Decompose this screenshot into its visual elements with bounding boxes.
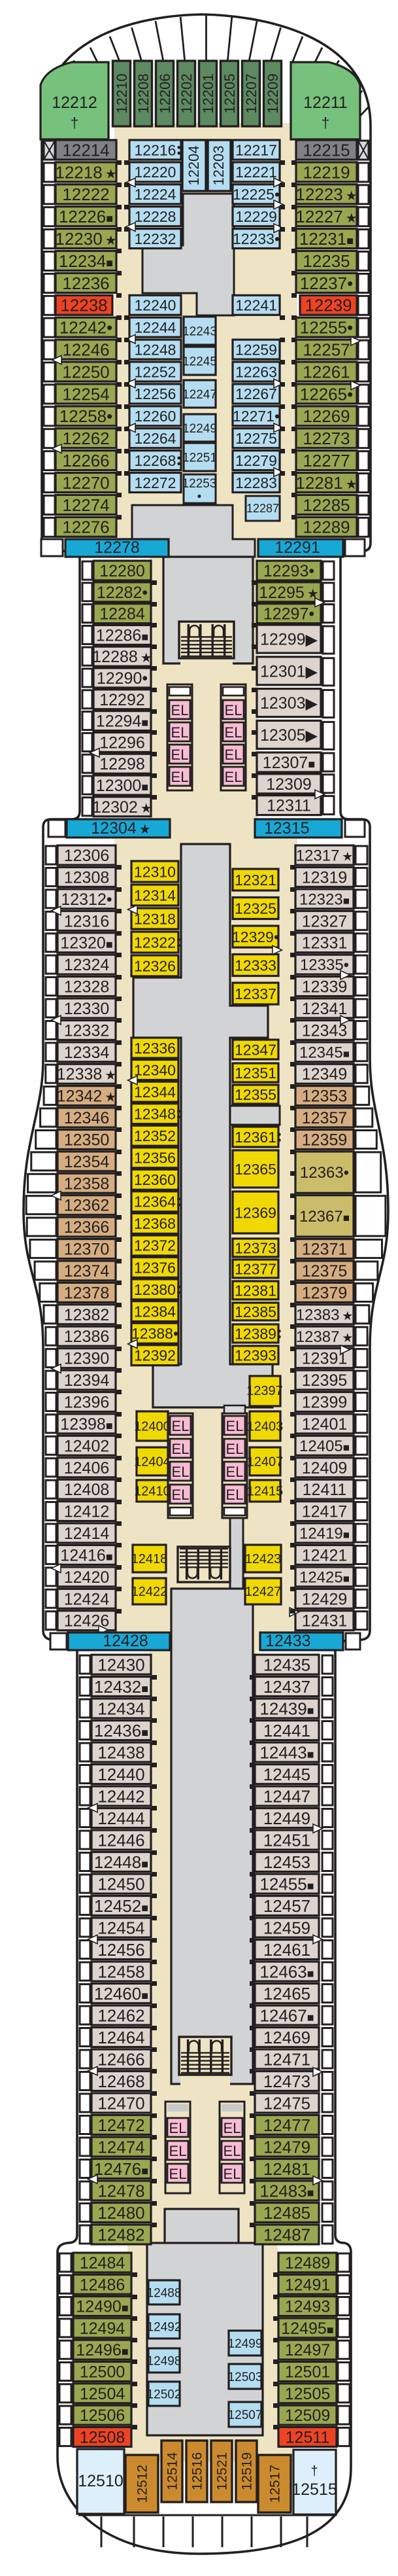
- svg-text:12301▶: 12301▶: [260, 662, 318, 680]
- svg-text:12225•: 12225•: [233, 186, 280, 203]
- svg-text:12219: 12219: [303, 162, 350, 182]
- svg-text:12275: 12275: [235, 430, 277, 447]
- svg-text:12221: 12221: [235, 164, 277, 181]
- svg-text:12390: 12390: [64, 1350, 110, 1368]
- svg-text:12268: 12268: [135, 452, 176, 469]
- svg-text:12344: 12344: [134, 1084, 176, 1101]
- svg-text:12367■: 12367■: [299, 1208, 350, 1226]
- svg-text:12269: 12269: [303, 406, 350, 426]
- svg-text:12291: 12291: [274, 538, 320, 557]
- svg-text:12482: 12482: [97, 2225, 144, 2244]
- svg-text:12500: 12500: [80, 2363, 125, 2382]
- svg-text:12351: 12351: [235, 1065, 276, 1082]
- svg-text:12266: 12266: [62, 451, 109, 470]
- svg-text:12208: 12208: [135, 73, 152, 113]
- svg-text:EL: EL: [172, 1487, 190, 1503]
- svg-text:12231■: 12231■: [299, 229, 354, 249]
- svg-text:12428: 12428: [103, 1632, 148, 1650]
- svg-text:12353: 12353: [302, 1087, 348, 1106]
- svg-text:12515: 12515: [291, 2480, 337, 2499]
- svg-text:EL: EL: [226, 1487, 244, 1503]
- svg-text:12446: 12446: [97, 1830, 144, 1850]
- svg-text:12206: 12206: [157, 73, 173, 113]
- svg-text:12264: 12264: [135, 430, 176, 447]
- svg-text:12359: 12359: [302, 1131, 348, 1150]
- svg-text:12350: 12350: [64, 1131, 110, 1150]
- svg-text:12499: 12499: [228, 2337, 263, 2351]
- svg-text:EL: EL: [226, 1464, 244, 1480]
- svg-text:12469: 12469: [263, 2028, 310, 2047]
- svg-text:EL: EL: [169, 2166, 187, 2182]
- svg-text:EL: EL: [225, 702, 242, 718]
- svg-text:12490■: 12490■: [76, 2298, 128, 2316]
- svg-text:12322: 12322: [134, 934, 176, 951]
- svg-text:EL: EL: [169, 2120, 187, 2136]
- svg-text:12464: 12464: [97, 2028, 144, 2047]
- svg-text:12493: 12493: [285, 2298, 331, 2316]
- svg-text:12325: 12325: [235, 900, 276, 917]
- svg-text:12485: 12485: [263, 2203, 310, 2223]
- svg-text:12505: 12505: [285, 2385, 331, 2403]
- svg-text:12363•: 12363•: [300, 1164, 349, 1182]
- svg-text:12365: 12365: [235, 1161, 276, 1178]
- svg-text:12434: 12434: [97, 1699, 144, 1718]
- svg-text:12484: 12484: [80, 2254, 125, 2272]
- svg-text:12462: 12462: [97, 2005, 144, 2025]
- svg-text:12463■: 12463■: [259, 1962, 314, 1981]
- svg-text:12486: 12486: [80, 2276, 125, 2294]
- svg-text:12314: 12314: [134, 887, 176, 904]
- svg-text:12467■: 12467■: [259, 2005, 314, 2025]
- svg-text:12309: 12309: [266, 775, 312, 794]
- svg-text:12293•: 12293•: [263, 562, 314, 580]
- svg-text:12203: 12203: [210, 145, 227, 185]
- svg-text:12477: 12477: [263, 2115, 310, 2135]
- svg-text:12331: 12331: [302, 934, 348, 953]
- svg-text:12234■: 12234■: [59, 251, 113, 271]
- svg-text:12438: 12438: [97, 1742, 144, 1762]
- svg-text:12417: 12417: [302, 1503, 348, 1521]
- svg-text:12297•: 12297•: [263, 605, 314, 624]
- svg-text:12274: 12274: [62, 495, 109, 515]
- svg-text:12448■: 12448■: [94, 1852, 148, 1872]
- svg-text:12502: 12502: [147, 2388, 182, 2401]
- svg-text:12259: 12259: [235, 341, 277, 358]
- svg-text:†: †: [71, 115, 78, 131]
- svg-text:12358: 12358: [64, 1174, 110, 1193]
- svg-text:12385: 12385: [235, 1303, 276, 1320]
- svg-text:12330: 12330: [64, 1000, 110, 1018]
- svg-text:EL: EL: [226, 1441, 244, 1457]
- svg-text:12481: 12481: [263, 2159, 310, 2179]
- svg-text:12508: 12508: [80, 2428, 125, 2446]
- svg-text:EL: EL: [224, 2143, 241, 2159]
- svg-text:EL: EL: [172, 1464, 190, 1480]
- svg-text:12265•: 12265•: [300, 384, 353, 404]
- svg-text:12501: 12501: [285, 2363, 331, 2382]
- svg-text:12205: 12205: [222, 73, 238, 113]
- svg-text:12474: 12474: [97, 2137, 144, 2157]
- svg-text:12361: 12361: [235, 1129, 276, 1146]
- svg-text:12447: 12447: [263, 1786, 310, 1806]
- svg-text:12468: 12468: [97, 2072, 144, 2091]
- svg-text:12398■: 12398■: [60, 1415, 112, 1434]
- svg-text:12373: 12373: [235, 1239, 276, 1256]
- svg-text:12478: 12478: [97, 2181, 144, 2200]
- svg-text:12286■: 12286■: [96, 626, 148, 644]
- svg-text:12429: 12429: [302, 1590, 348, 1608]
- svg-text:12294■: 12294■: [96, 713, 148, 731]
- svg-text:12342 ★: 12342 ★: [57, 1087, 116, 1106]
- svg-text:12514: 12514: [165, 2452, 180, 2490]
- svg-text:12352: 12352: [134, 1127, 176, 1144]
- svg-text:12418: 12418: [131, 1552, 168, 1566]
- svg-text:EL: EL: [172, 1441, 190, 1457]
- svg-text:12202: 12202: [178, 73, 195, 113]
- svg-text:12487: 12487: [263, 2225, 310, 2244]
- svg-text:12384: 12384: [134, 1303, 176, 1320]
- svg-text:12243: 12243: [182, 325, 217, 338]
- svg-text:12516: 12516: [190, 2452, 205, 2490]
- svg-text:12355: 12355: [235, 1086, 276, 1103]
- svg-text:12348: 12348: [134, 1105, 176, 1122]
- svg-text:12437: 12437: [263, 1677, 310, 1697]
- svg-text:12320■: 12320■: [60, 934, 112, 953]
- svg-text:12241: 12241: [235, 297, 277, 314]
- svg-text:12407: 12407: [247, 1455, 284, 1470]
- svg-text:EL: EL: [171, 702, 189, 718]
- svg-text:12476■: 12476■: [94, 2159, 148, 2179]
- svg-text:12272: 12272: [135, 474, 176, 491]
- svg-text:12439■: 12439■: [259, 1699, 314, 1718]
- svg-text:12278: 12278: [94, 538, 140, 557]
- svg-text:12422: 12422: [131, 1585, 168, 1599]
- svg-text:12444: 12444: [97, 1808, 144, 1828]
- svg-text:12466: 12466: [97, 2049, 144, 2069]
- svg-text:12279: 12279: [235, 452, 277, 469]
- svg-text:12319: 12319: [302, 868, 348, 887]
- svg-text:12232: 12232: [135, 230, 176, 247]
- svg-text:12357: 12357: [302, 1109, 348, 1127]
- svg-text:12337: 12337: [235, 985, 276, 1002]
- svg-text:12388•: 12388•: [131, 1325, 178, 1342]
- svg-text:12475: 12475: [263, 2093, 310, 2113]
- svg-text:12368: 12368: [134, 1215, 176, 1232]
- svg-text:EL: EL: [224, 2120, 241, 2136]
- svg-text:12381: 12381: [235, 1282, 276, 1299]
- svg-text:12449: 12449: [263, 1808, 310, 1828]
- svg-text:12494: 12494: [80, 2320, 125, 2338]
- svg-text:12251: 12251: [182, 451, 217, 465]
- svg-text:12411: 12411: [303, 1481, 347, 1499]
- svg-text:12401: 12401: [302, 1415, 348, 1434]
- svg-text:EL: EL: [225, 747, 242, 763]
- svg-text:12509: 12509: [285, 2407, 331, 2425]
- svg-text:12406: 12406: [64, 1459, 110, 1477]
- svg-text:12424: 12424: [64, 1590, 110, 1608]
- svg-text:12377: 12377: [235, 1260, 276, 1277]
- svg-text:12340: 12340: [134, 1061, 176, 1078]
- svg-text:12228: 12228: [135, 208, 176, 225]
- svg-text:12415: 12415: [247, 1485, 284, 1499]
- svg-text:12480: 12480: [97, 2203, 144, 2223]
- svg-text:12250: 12250: [62, 362, 109, 381]
- svg-text:12315: 12315: [264, 819, 310, 838]
- svg-text:12521: 12521: [215, 2452, 230, 2490]
- svg-text:12379: 12379: [302, 1284, 348, 1302]
- svg-text:12215: 12215: [303, 140, 350, 160]
- svg-text:12212: 12212: [52, 94, 97, 112]
- svg-text:12389: 12389: [235, 1325, 276, 1342]
- svg-text:12504: 12504: [80, 2385, 125, 2403]
- svg-text:12427: 12427: [245, 1585, 282, 1599]
- svg-text:12260: 12260: [135, 408, 176, 425]
- svg-text:12209: 12209: [265, 73, 281, 113]
- svg-text:12392: 12392: [134, 1347, 176, 1364]
- svg-text:12410: 12410: [134, 1485, 171, 1499]
- svg-text:12370: 12370: [64, 1241, 110, 1259]
- svg-text:12431: 12431: [302, 1612, 348, 1631]
- svg-text:12497: 12497: [285, 2341, 331, 2359]
- svg-text:12280: 12280: [99, 562, 145, 580]
- svg-text:12327: 12327: [302, 912, 348, 930]
- svg-text:12287: 12287: [246, 502, 279, 515]
- svg-text:12298: 12298: [99, 755, 145, 773]
- svg-text:12460■: 12460■: [94, 1984, 148, 2003]
- svg-text:12282•: 12282•: [97, 584, 148, 602]
- svg-text:12409: 12409: [302, 1459, 348, 1477]
- svg-text:12329•: 12329•: [232, 928, 279, 945]
- svg-text:12336: 12336: [134, 1040, 176, 1057]
- svg-text:12349: 12349: [302, 1065, 348, 1084]
- svg-text:12453: 12453: [263, 1852, 310, 1872]
- svg-text:12210: 12210: [114, 73, 130, 113]
- svg-text:12326: 12326: [134, 957, 176, 974]
- svg-text:12492: 12492: [147, 2320, 182, 2334]
- svg-text:12511: 12511: [286, 2428, 330, 2446]
- svg-text:12376: 12376: [134, 1259, 176, 1276]
- svg-text:12479: 12479: [263, 2137, 310, 2157]
- svg-text:12414: 12414: [64, 1525, 110, 1543]
- svg-text:12328: 12328: [64, 978, 110, 997]
- svg-text:12244: 12244: [135, 319, 176, 336]
- svg-text:12245: 12245: [182, 355, 217, 368]
- svg-text:12441: 12441: [263, 1721, 310, 1740]
- svg-text:12450: 12450: [97, 1874, 144, 1894]
- svg-text:12226■: 12226■: [59, 207, 113, 226]
- svg-text:12372: 12372: [134, 1237, 176, 1254]
- svg-text:12240: 12240: [135, 297, 176, 314]
- svg-text:12354: 12354: [64, 1153, 110, 1171]
- svg-text:12295 ★: 12295 ★: [259, 584, 318, 602]
- svg-text:12324: 12324: [64, 956, 110, 974]
- svg-text:12254: 12254: [62, 384, 109, 404]
- svg-text:12204: 12204: [186, 145, 202, 185]
- svg-text:12495■: 12495■: [281, 2320, 333, 2338]
- svg-text:12386: 12386: [64, 1328, 110, 1346]
- svg-text:12246: 12246: [62, 340, 109, 360]
- svg-text:12339: 12339: [302, 978, 348, 997]
- svg-text:12483■: 12483■: [259, 2181, 314, 2200]
- svg-text:12304 ★: 12304 ★: [91, 819, 150, 838]
- svg-text:12399: 12399: [302, 1394, 348, 1412]
- svg-text:12435: 12435: [263, 1655, 310, 1674]
- svg-text:12405■: 12405■: [299, 1438, 350, 1455]
- svg-text:12270: 12270: [62, 473, 109, 493]
- svg-text:12311: 12311: [267, 797, 311, 815]
- svg-text:12303▶: 12303▶: [260, 694, 318, 713]
- svg-text:12308: 12308: [64, 868, 110, 887]
- svg-text:12400: 12400: [134, 1420, 171, 1434]
- svg-text:12419■: 12419■: [299, 1525, 350, 1543]
- svg-text:12276: 12276: [62, 518, 109, 537]
- svg-text:†: †: [310, 2464, 318, 2479]
- svg-text:12496■: 12496■: [76, 2341, 128, 2359]
- svg-text:12252: 12252: [135, 363, 176, 380]
- svg-text:12472: 12472: [97, 2115, 144, 2135]
- svg-text:12459: 12459: [263, 1918, 310, 1937]
- svg-text:12235: 12235: [303, 251, 350, 271]
- svg-text:12338 ★: 12338 ★: [57, 1065, 116, 1084]
- svg-text:12356: 12356: [134, 1150, 176, 1167]
- svg-text:12430: 12430: [97, 1655, 144, 1674]
- svg-text:12284: 12284: [99, 605, 145, 624]
- svg-text:EL: EL: [225, 769, 242, 785]
- svg-text:12249: 12249: [182, 422, 217, 436]
- svg-text:12305▶: 12305▶: [260, 726, 318, 745]
- svg-text:•: •: [197, 490, 202, 504]
- svg-text:12403: 12403: [247, 1420, 284, 1434]
- svg-text:12436■: 12436■: [94, 1721, 148, 1740]
- svg-text:12242•: 12242•: [59, 318, 112, 338]
- svg-text:12292: 12292: [99, 691, 145, 709]
- svg-text:12425■: 12425■: [299, 1569, 350, 1587]
- svg-text:12310: 12310: [134, 863, 176, 880]
- svg-text:12263: 12263: [235, 363, 277, 380]
- svg-text:12452■: 12452■: [94, 1896, 148, 1916]
- svg-text:12510: 12510: [78, 2472, 124, 2490]
- svg-text:12423: 12423: [245, 1552, 282, 1566]
- svg-text:12224: 12224: [135, 186, 176, 203]
- svg-text:12261: 12261: [303, 362, 350, 381]
- svg-text:12233•: 12233•: [233, 230, 280, 247]
- svg-text:12296: 12296: [99, 733, 145, 752]
- svg-text:12273: 12273: [303, 429, 350, 448]
- svg-text:12237•: 12237•: [300, 273, 353, 293]
- svg-text:12332: 12332: [64, 1021, 110, 1040]
- svg-text:12442: 12442: [97, 1786, 144, 1806]
- svg-text:12214: 12214: [62, 140, 109, 160]
- svg-text:EL: EL: [224, 2166, 241, 2182]
- svg-text:12456: 12456: [97, 1940, 144, 1960]
- svg-text:12408: 12408: [64, 1481, 110, 1499]
- svg-text:12300■: 12300■: [96, 777, 148, 795]
- svg-text:12346: 12346: [64, 1109, 110, 1127]
- svg-text:12503: 12503: [228, 2371, 263, 2384]
- svg-text:12440: 12440: [97, 1765, 144, 1784]
- svg-text:12433: 12433: [265, 1632, 311, 1650]
- svg-text:12491: 12491: [285, 2276, 331, 2294]
- svg-text:12397: 12397: [246, 1384, 283, 1398]
- svg-text:12288 ★: 12288 ★: [92, 648, 152, 666]
- svg-text:12220: 12220: [135, 164, 176, 181]
- svg-text:12236: 12236: [62, 273, 109, 293]
- svg-text:12257: 12257: [303, 340, 350, 360]
- svg-text:12253: 12253: [182, 477, 217, 491]
- svg-text:12258•: 12258•: [59, 406, 112, 426]
- svg-text:12393: 12393: [235, 1347, 276, 1364]
- svg-text:12323■: 12323■: [299, 891, 350, 909]
- svg-text:12290•: 12290•: [97, 669, 148, 688]
- svg-text:12216: 12216: [135, 141, 176, 158]
- svg-text:12375: 12375: [302, 1262, 348, 1280]
- svg-text:12506: 12506: [80, 2407, 125, 2425]
- svg-text:12299▶: 12299▶: [260, 631, 318, 649]
- svg-text:12488: 12488: [147, 2286, 182, 2300]
- svg-text:12461: 12461: [263, 1940, 310, 1960]
- svg-text:12283: 12283: [235, 474, 277, 491]
- svg-text:12347: 12347: [235, 1041, 276, 1058]
- svg-text:12316: 12316: [64, 912, 110, 930]
- svg-text:12387 ★: 12387 ★: [296, 1328, 354, 1346]
- svg-text:12420: 12420: [64, 1568, 110, 1587]
- svg-text:12256: 12256: [135, 385, 176, 402]
- svg-text:12211: 12211: [303, 94, 348, 112]
- svg-text:†: †: [322, 115, 329, 131]
- svg-text:12306: 12306: [64, 847, 110, 865]
- svg-text:EL: EL: [172, 1418, 190, 1434]
- svg-text:12458: 12458: [97, 1962, 144, 1981]
- svg-text:12374: 12374: [64, 1262, 110, 1280]
- svg-text:EL: EL: [171, 769, 189, 785]
- svg-text:12454: 12454: [97, 1918, 144, 1937]
- svg-text:12277: 12277: [303, 451, 350, 470]
- svg-text:12247: 12247: [182, 388, 217, 402]
- svg-text:12312•: 12312•: [61, 891, 112, 909]
- svg-text:12455■: 12455■: [259, 1874, 314, 1894]
- svg-text:12364: 12364: [134, 1193, 176, 1210]
- svg-text:12289: 12289: [303, 518, 350, 537]
- svg-text:EL: EL: [171, 747, 189, 763]
- svg-text:12378: 12378: [64, 1284, 110, 1302]
- svg-text:12517: 12517: [268, 2465, 283, 2503]
- svg-text:12404: 12404: [134, 1455, 171, 1470]
- svg-text:12307■: 12307■: [263, 754, 315, 772]
- svg-text:12489: 12489: [285, 2254, 331, 2272]
- svg-text:12451: 12451: [263, 1830, 310, 1850]
- svg-text:12457: 12457: [263, 1896, 310, 1916]
- svg-text:12334: 12334: [64, 1044, 110, 1062]
- svg-text:12229: 12229: [235, 208, 277, 225]
- svg-text:EL: EL: [226, 1418, 244, 1434]
- svg-text:12402: 12402: [64, 1437, 110, 1455]
- svg-text:12519: 12519: [240, 2452, 255, 2490]
- svg-text:12248: 12248: [135, 341, 176, 358]
- svg-text:12321: 12321: [235, 872, 276, 889]
- svg-text:12470: 12470: [97, 2093, 144, 2113]
- svg-text:12394: 12394: [64, 1371, 110, 1390]
- svg-text:EL: EL: [225, 724, 242, 741]
- svg-text:12465: 12465: [263, 1984, 310, 2003]
- svg-text:EL: EL: [169, 2143, 187, 2159]
- svg-text:12412: 12412: [64, 1503, 110, 1521]
- svg-text:12201: 12201: [200, 73, 216, 113]
- svg-text:12318: 12318: [134, 910, 176, 927]
- svg-text:12395: 12395: [302, 1371, 348, 1390]
- svg-text:12255•: 12255•: [300, 318, 353, 338]
- svg-text:12473: 12473: [263, 2072, 310, 2091]
- svg-text:12317 ★: 12317 ★: [296, 847, 354, 865]
